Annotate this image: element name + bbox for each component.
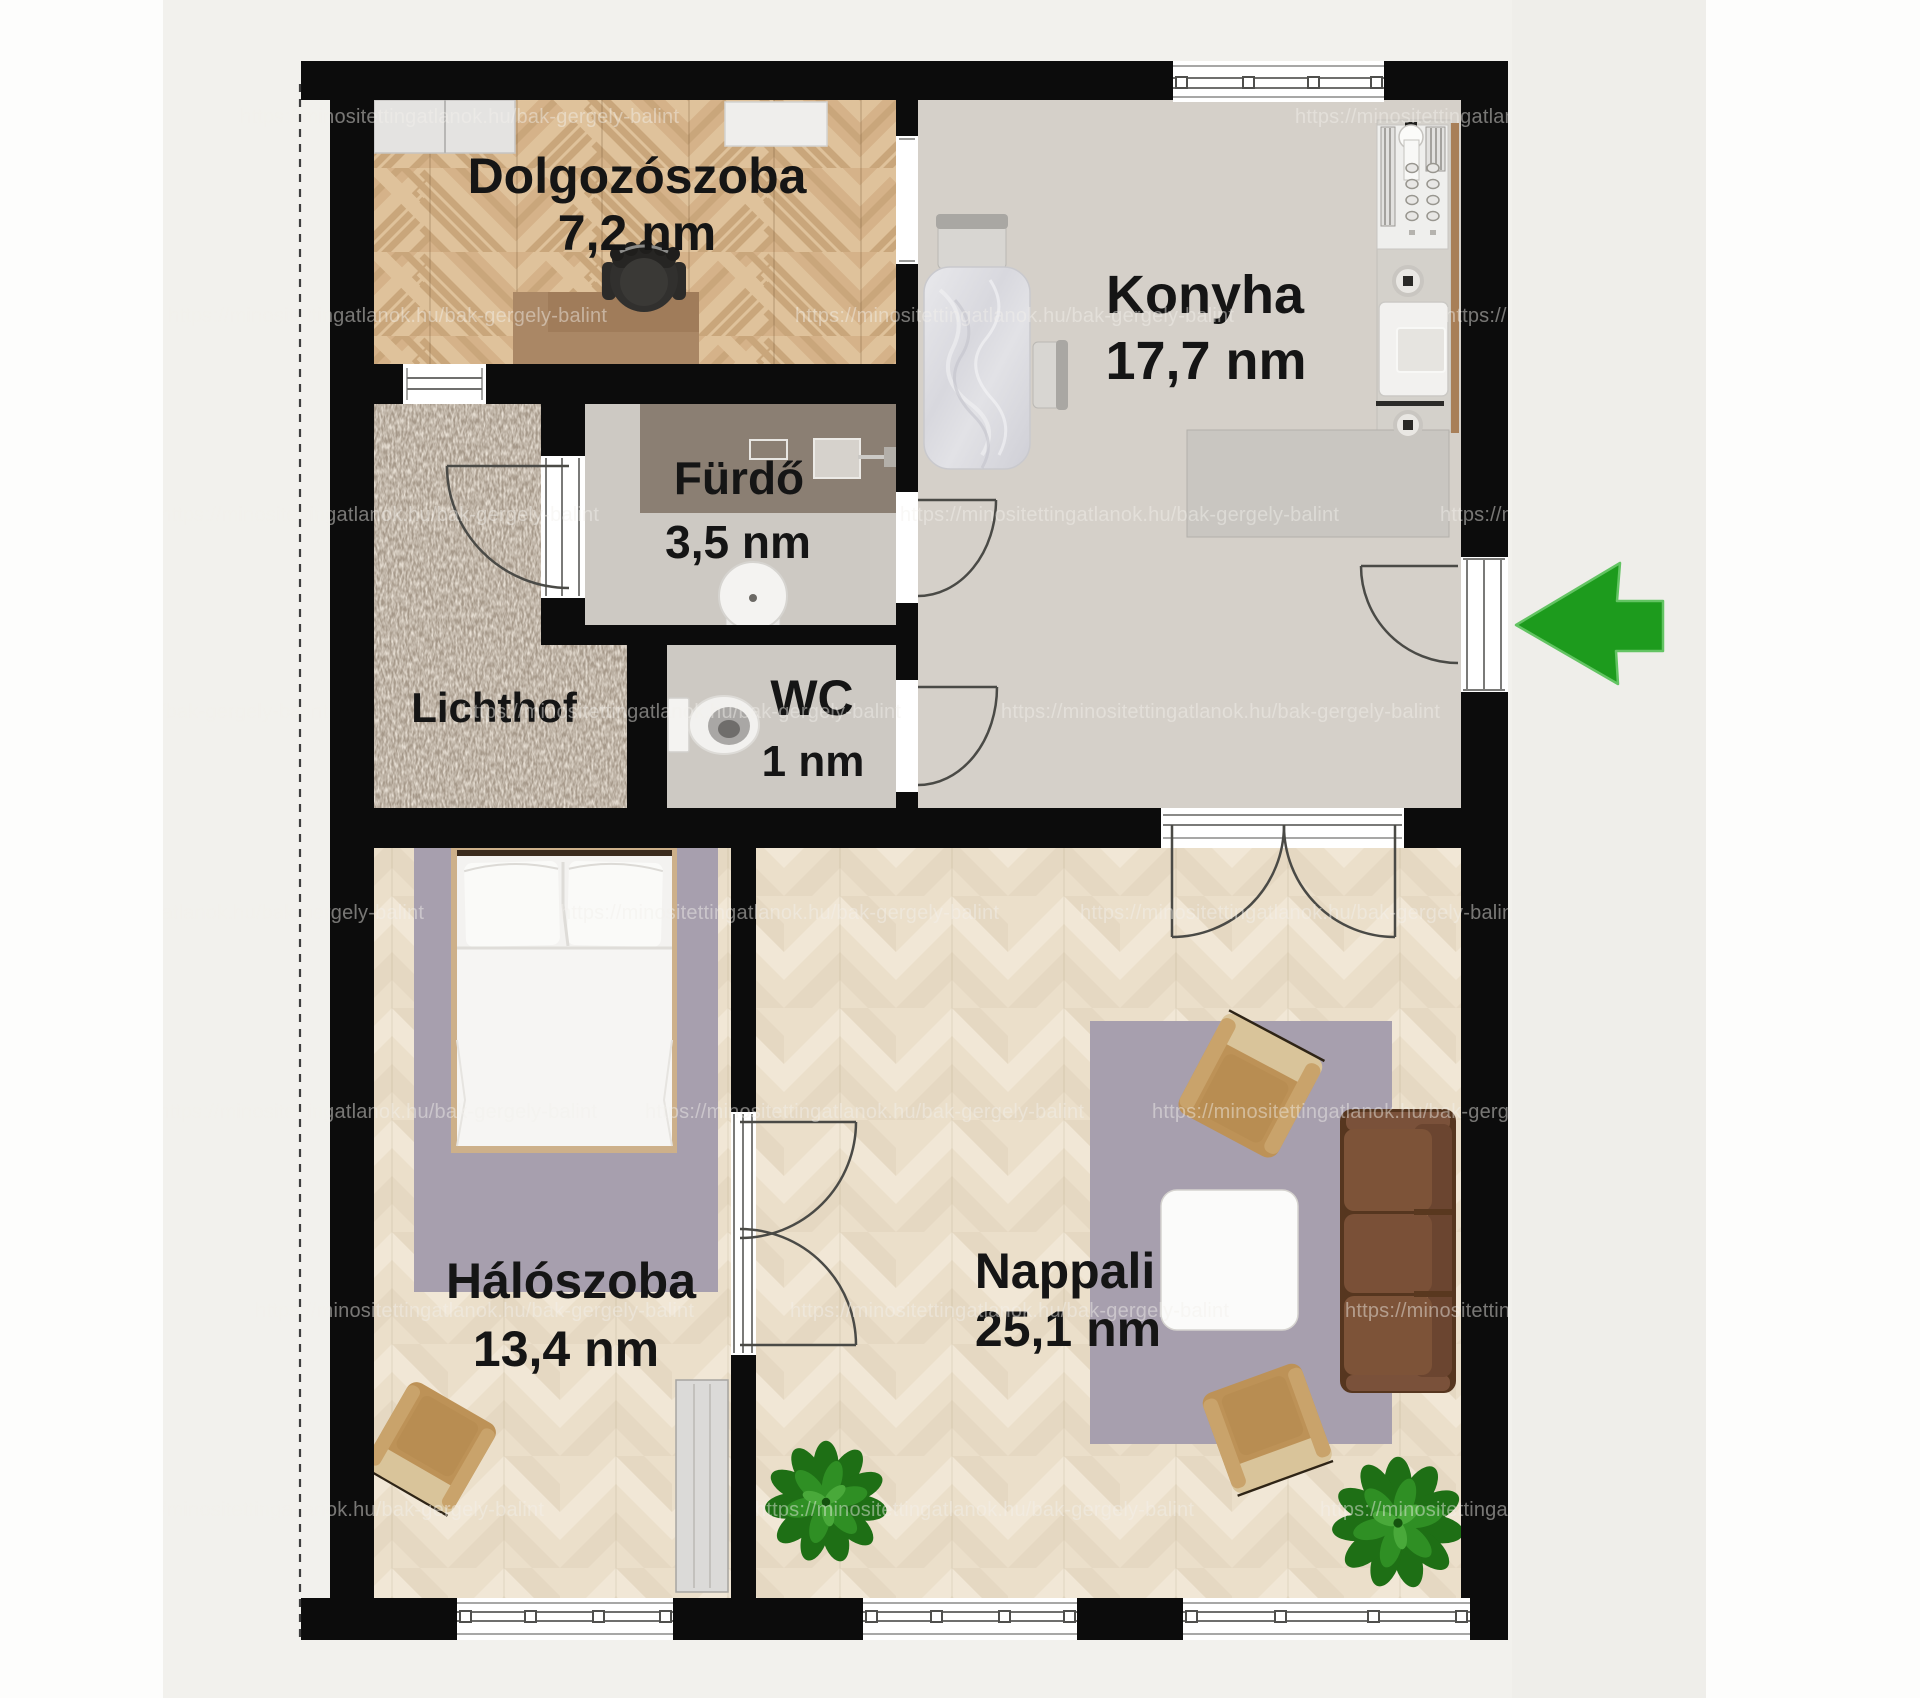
svg-text:https://minositettingatlanok.h: https://minositettingatlanok.hu/bak-gerg… (160, 504, 599, 526)
svg-text:Nappali: Nappali (975, 1243, 1156, 1299)
svg-text:https://minositettingatlanok.h: https://minositettingatlanok.hu/bak-gerg… (645, 1101, 1084, 1123)
svg-text:3,5 nm: 3,5 nm (665, 516, 811, 568)
svg-text:13,4 nm: 13,4 nm (473, 1321, 659, 1377)
svg-text:17,7 nm: 17,7 nm (1105, 331, 1306, 391)
svg-text:https://minositettingatlanok.h: https://minositettingatlanok.hu/bak-gerg… (240, 106, 679, 128)
svg-text:https://minositettingatlanok.h: https://minositettingatlanok.hu/bak-gerg… (158, 1101, 597, 1123)
svg-text:https://minositettingatlanok.h: https://minositettingatlanok.hu/bak-gerg… (1001, 701, 1440, 723)
svg-text:https://minositettingatlanok.h: https://minositettingatlanok.hu/bak-gerg… (255, 1300, 694, 1322)
svg-text:https://minositettingatlanok.h: https://minositettingatlanok.hu/bak-gerg… (560, 902, 999, 924)
svg-text:https://minositettingatlanok.h: https://minositettingatlanok.hu/bak-gerg… (795, 305, 1234, 327)
svg-text:https://minositettingatlanok.h: https://minositettingatlanok.hu/bak-gerg… (1080, 902, 1519, 924)
svg-text:https://minositettingatlanok.h: https://minositettingatlanok.hu/bak-gerg… (168, 305, 607, 327)
svg-text:Dolgozószoba: Dolgozószoba (468, 148, 808, 204)
svg-text:https://minositettingatlanok.h: https://minositettingatlanok.hu/bak-gerg… (105, 1499, 544, 1521)
svg-text:https://minositettingatlanok.h: https://minositettingatlanok.hu/bak-gerg… (755, 1499, 1194, 1521)
svg-text:1 nm: 1 nm (762, 737, 865, 786)
svg-text:https://minositettingatlanok.h: https://minositettingatlanok.hu/bak-gerg… (790, 1300, 1229, 1322)
svg-text:https://minositettingatlanok.h: https://minositettingatlanok.hu/bak-gerg… (900, 504, 1339, 526)
svg-text:https://minositettingatlanok.h: https://minositettingatlanok.hu/bak-gerg… (462, 701, 901, 723)
svg-text:7,2 nm: 7,2 nm (558, 205, 716, 261)
svg-text:Fürdő: Fürdő (674, 452, 804, 504)
